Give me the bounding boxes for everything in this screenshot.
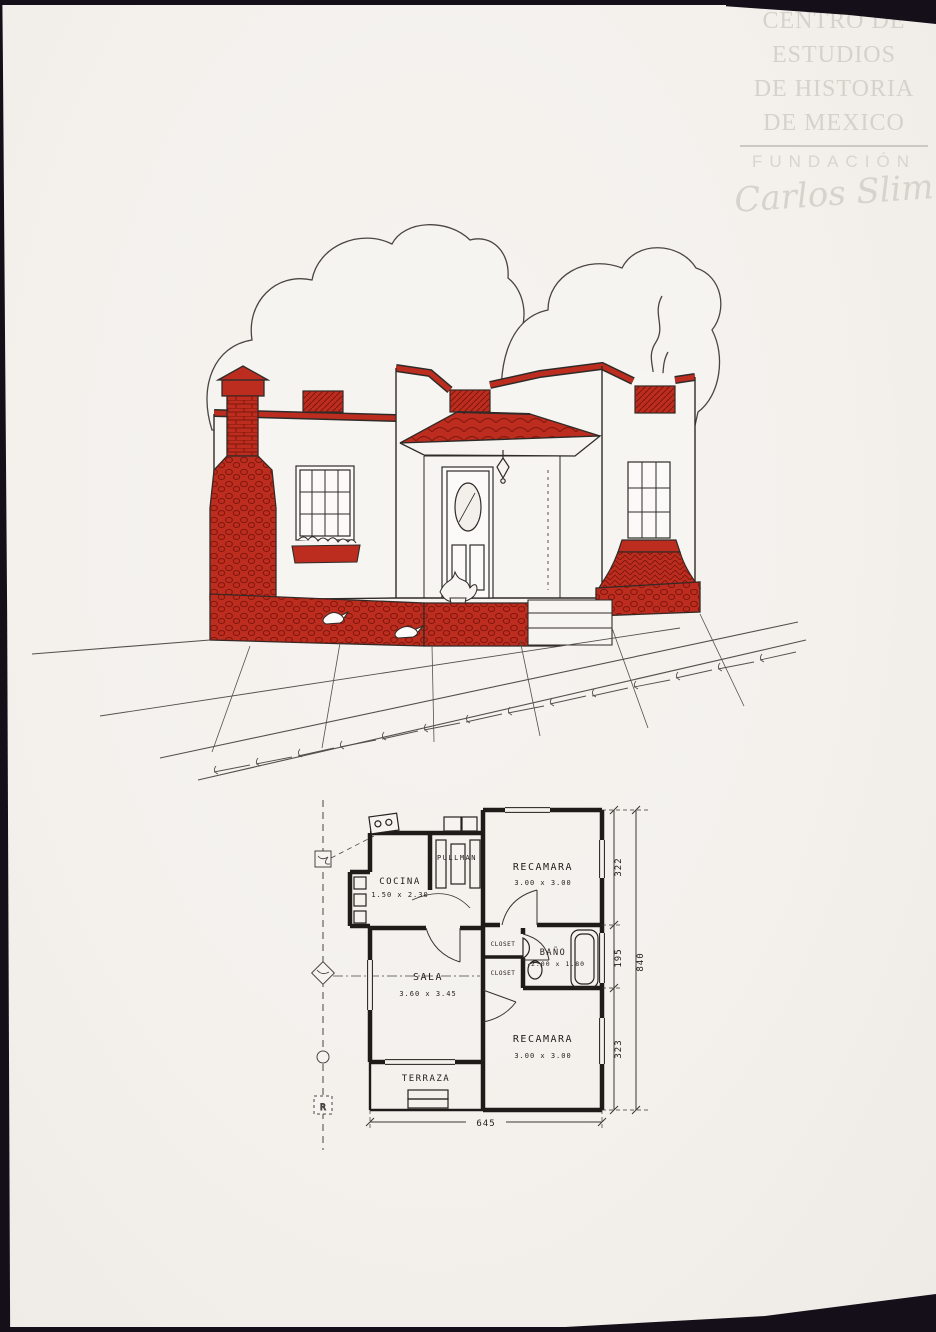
dimension-labels: 322 195 323 840 645 <box>476 857 646 1129</box>
entry-steps <box>528 600 612 645</box>
right-window <box>628 462 670 538</box>
ink-drawing-canvas: R <box>0 0 936 1332</box>
closet-label-1: CLOSET <box>491 941 516 948</box>
register-mark-label: R <box>320 1103 326 1113</box>
terraza-walls <box>370 1062 483 1110</box>
room-dims-sala: 3.60 x 3.45 <box>399 990 456 998</box>
room-label-recamara-1: RECAMARA <box>513 862 573 873</box>
room-label-bano: BAÑO <box>540 947 566 958</box>
room-dims-cocina: 1.50 x 2.30 <box>371 891 428 899</box>
dim-195: 195 <box>614 948 624 967</box>
door-swings <box>412 890 549 1022</box>
scanned-catalog-page: CENTRO DE ESTUDIOS DE HISTORIA DE MEXICO… <box>0 0 936 1332</box>
dim-323: 323 <box>614 1039 624 1058</box>
room-label-terraza: TERRAZA <box>402 1074 450 1084</box>
room-label-sala: SALA <box>413 972 443 983</box>
room-label-pullman: PULLMAN <box>437 854 477 862</box>
room-dims-recamara-2: 3.00 x 3.00 <box>514 1052 571 1060</box>
floor-plan-diagram: R <box>312 800 648 1150</box>
plan-windows <box>368 808 605 1065</box>
dim-840: 840 <box>636 952 646 971</box>
room-label-cocina: COCINA <box>379 877 421 887</box>
dim-645: 645 <box>476 1119 495 1129</box>
closet-label-2: CLOSET <box>491 970 516 977</box>
dim-322: 322 <box>614 857 624 876</box>
room-label-recamara-2: RECAMARA <box>513 1034 573 1045</box>
left-window <box>296 466 354 540</box>
room-dims-recamara-1: 3.00 x 3.00 <box>514 879 571 887</box>
house-perspective-illustration <box>32 225 806 780</box>
room-dims-bano: 2.00 x 1.80 <box>531 960 585 968</box>
